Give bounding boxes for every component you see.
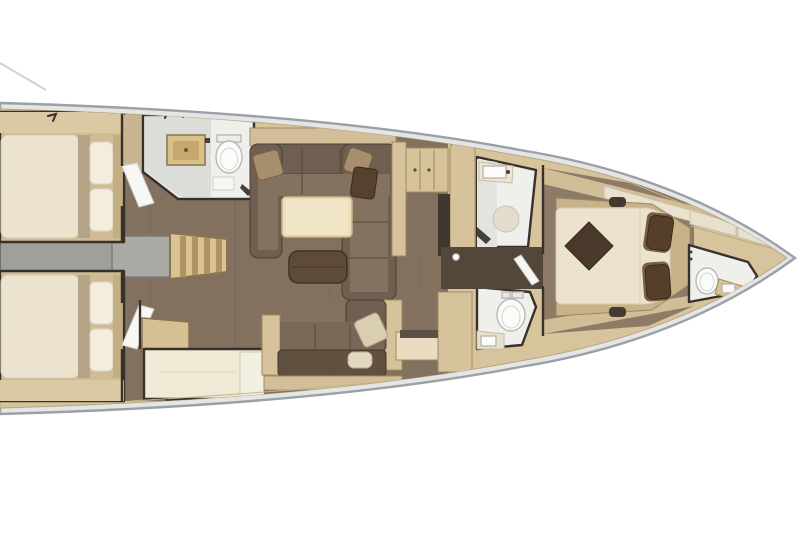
counter-edge	[400, 330, 438, 338]
floor-plan-canvas	[0, 0, 800, 533]
seat	[258, 174, 278, 250]
passage	[441, 247, 543, 289]
toilet	[216, 141, 242, 173]
tall-locker-starboard	[438, 292, 472, 372]
sideboard	[392, 142, 406, 256]
faucet	[205, 138, 210, 143]
bath-mat	[213, 177, 234, 190]
galley-cabinets	[406, 148, 448, 192]
chart-desk	[142, 318, 189, 349]
bedside-pad	[609, 307, 626, 317]
faucet	[506, 170, 510, 174]
door-hinge	[690, 251, 693, 254]
table-top	[286, 200, 348, 234]
double-berth-mattress	[1, 275, 79, 378]
throw-pillow-light	[348, 352, 372, 368]
pillow	[90, 329, 113, 371]
door-hinge	[690, 258, 693, 261]
vanity-sink	[481, 336, 496, 346]
handle	[413, 168, 416, 171]
toilet	[497, 299, 525, 331]
pillow	[90, 189, 113, 231]
vanity-sink	[483, 166, 506, 178]
tall-locker-port	[450, 142, 475, 258]
headboard	[113, 275, 122, 378]
cistern	[512, 292, 523, 298]
cistern	[502, 292, 510, 298]
handle	[427, 168, 430, 171]
pillow	[90, 282, 113, 324]
bench-panel	[240, 352, 264, 397]
berth-runner	[78, 275, 90, 378]
dark-counter	[438, 194, 450, 256]
pillow	[90, 142, 113, 184]
shower-tray	[493, 206, 519, 232]
sofa-end-cabinet	[262, 315, 280, 375]
throw-pillow-dark	[350, 166, 378, 199]
shelf-band	[0, 380, 124, 401]
headboard	[113, 135, 122, 238]
double-berth-mattress	[1, 135, 79, 238]
shower-room-port	[477, 157, 536, 247]
yacht-floor-plan	[0, 0, 800, 533]
door-knob	[453, 254, 460, 261]
bedside-pad	[609, 197, 626, 207]
shelf-band	[0, 112, 124, 133]
berth-runner	[78, 135, 90, 238]
toilet	[696, 268, 718, 294]
drain	[184, 148, 188, 152]
